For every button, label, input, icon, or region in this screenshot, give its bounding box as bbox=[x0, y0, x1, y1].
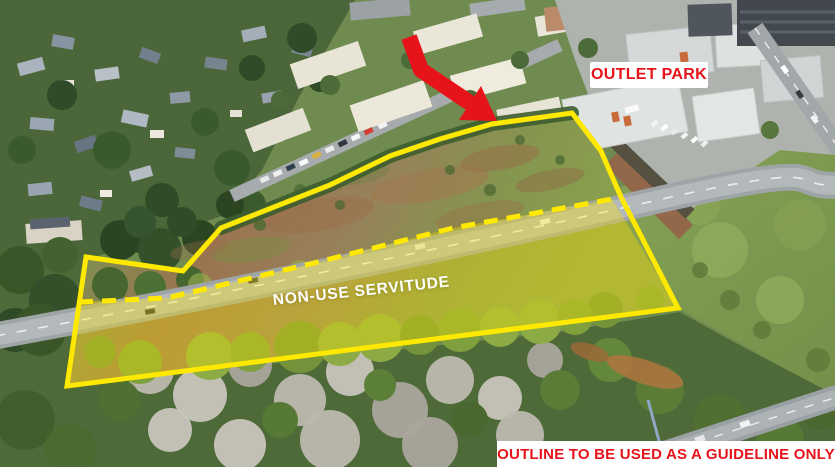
outlet-park-label-text: OUTLET PARK bbox=[591, 66, 707, 84]
outlet-park-label: OUTLET PARK bbox=[590, 62, 708, 88]
aerial-photo: OUTLET PARK NON-USE SERVITUDE OUTLINE TO… bbox=[0, 0, 835, 467]
disclaimer-label-text: OUTLINE TO BE USED AS A GUIDELINE ONLY bbox=[497, 446, 835, 463]
aerial-photo-scene bbox=[0, 0, 835, 467]
disclaimer-label: OUTLINE TO BE USED AS A GUIDELINE ONLY bbox=[497, 441, 835, 467]
